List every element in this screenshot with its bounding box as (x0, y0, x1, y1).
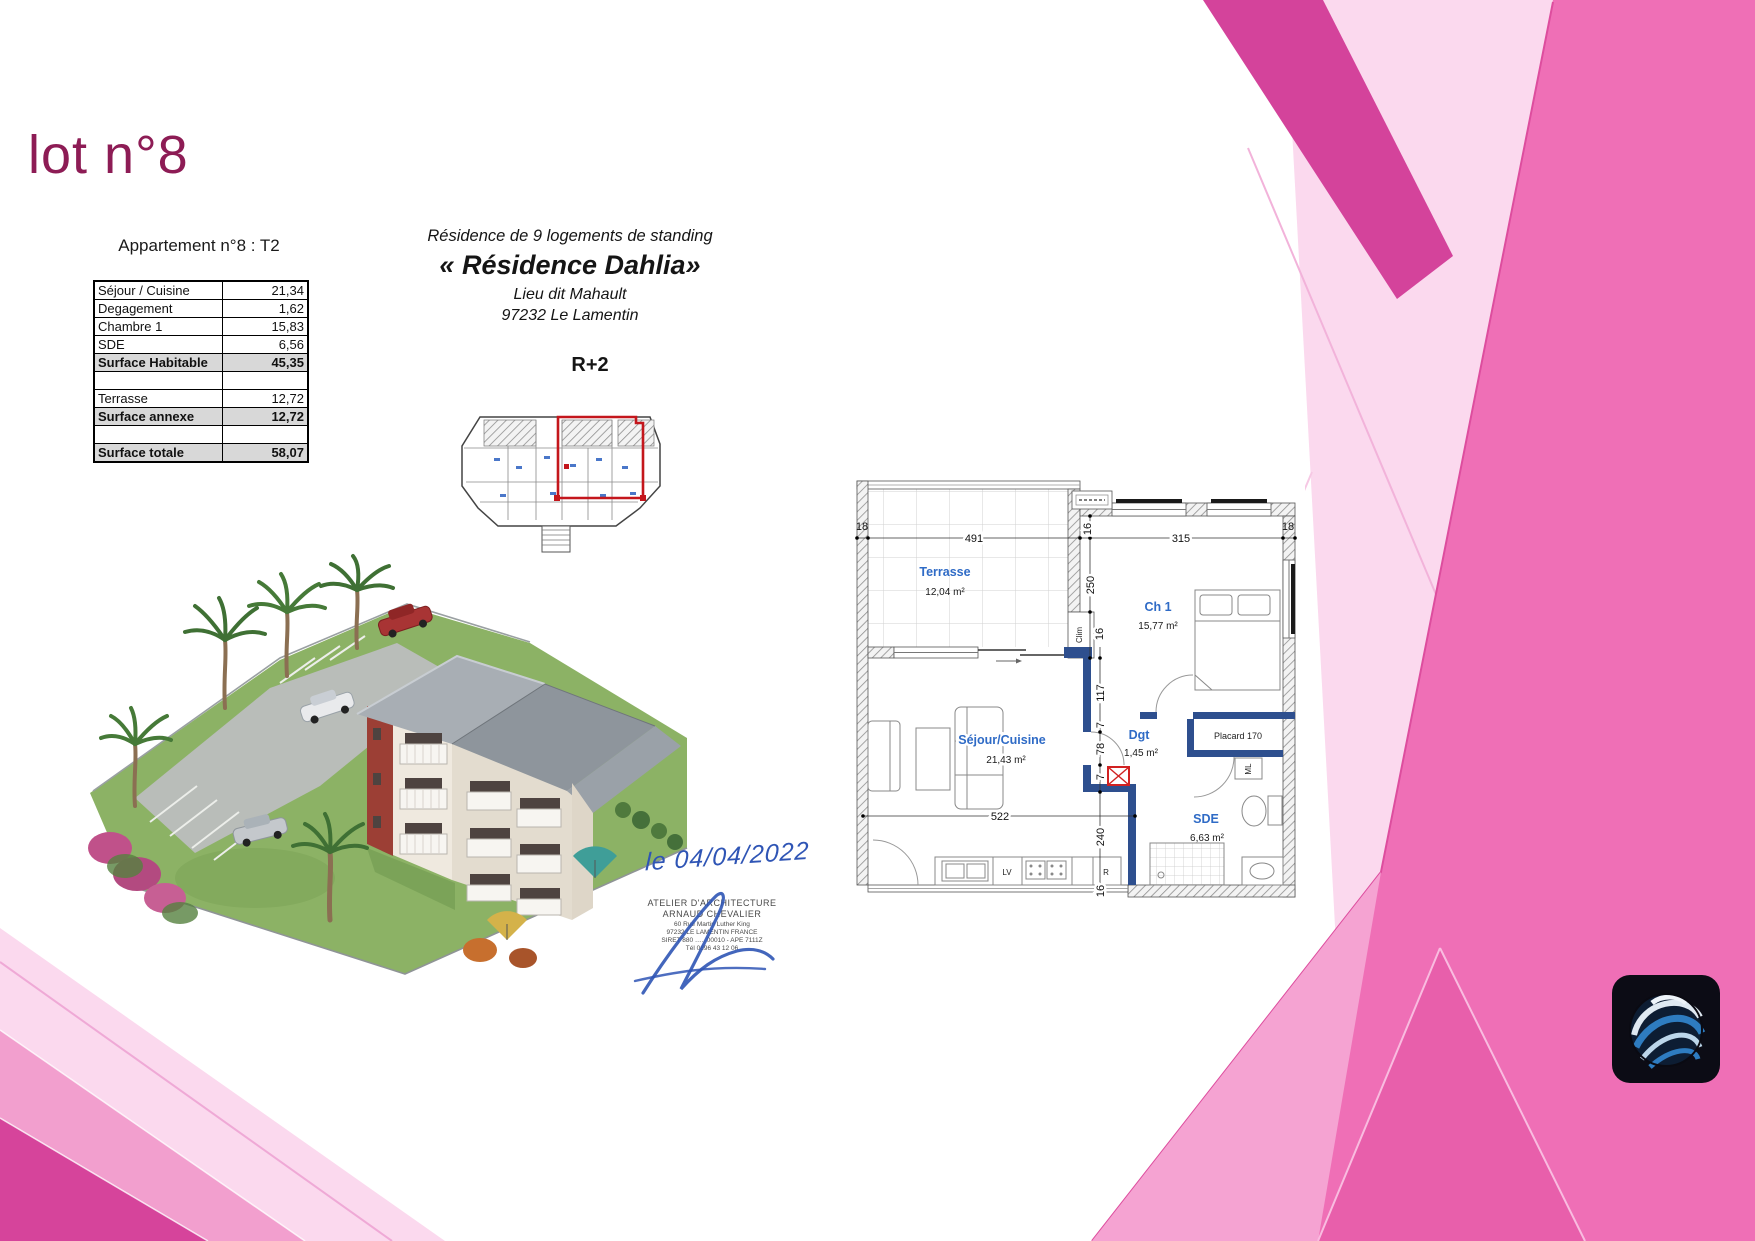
table-row-total: Surface totale58,07 (95, 443, 307, 461)
table-row: Chambre 115,83 (95, 317, 307, 335)
residence-city: 97232 Le Lamentin (420, 305, 720, 326)
dim-117: 117 (1095, 684, 1107, 702)
shower (1150, 843, 1224, 885)
red-crossed-box-icon (1108, 767, 1129, 785)
row-value: 6,56 (223, 336, 307, 353)
apartment-table-heading: Appartement n°8 : T2 (93, 236, 305, 256)
table-row: Séjour / Cuisine21,34 (95, 282, 307, 299)
table-row-total: Surface annexe12,72 (95, 407, 307, 425)
room-sde-label: SDE (1193, 812, 1219, 826)
residence-name: « Résidence Dahlia» (420, 249, 720, 282)
row-label: Séjour / Cuisine (95, 282, 223, 299)
table-row: Degagement1,62 (95, 299, 307, 317)
dim-240: 240 (1095, 828, 1107, 846)
room-dgt-label: Dgt (1129, 728, 1151, 742)
dim-7b: 7 (1095, 774, 1107, 780)
residence-heading-block: Résidence de 9 logements de standing « R… (420, 226, 720, 326)
placard-label: Placard 170 (1214, 731, 1262, 741)
table-row: SDE6,56 (95, 335, 307, 353)
brand-logo (1612, 975, 1720, 1083)
table-row: Terrasse12,72 (95, 389, 307, 407)
room-dgt-area: 1,45 m² (1124, 748, 1159, 759)
slide-canvas: lot n°8 Appartement n°8 : T2 Séjour / Cu… (0, 0, 1755, 1241)
dim-16-clim: 16 (1094, 628, 1106, 640)
clim-label: Clim (1075, 627, 1084, 643)
row-value: 58,07 (223, 444, 307, 461)
row-label: Terrasse (95, 390, 223, 407)
ml-label: ML (1244, 763, 1253, 775)
signature-scribble (615, 885, 805, 1000)
room-ch1-area: 15,77 m² (1138, 621, 1178, 632)
room-sde-area: 6,63 m² (1190, 833, 1225, 844)
kitchen-counter (935, 857, 1121, 885)
floor-level-label: R+2 (440, 354, 740, 377)
row-label: Surface totale (95, 444, 223, 461)
residence-subtitle: Résidence de 9 logements de standing (420, 226, 720, 246)
room-sejour-label: Séjour/Cuisine (958, 733, 1046, 747)
table-row-empty (95, 371, 307, 389)
row-label: SDE (95, 336, 223, 353)
row-value: 12,72 (223, 390, 307, 407)
room-terrasse-label: Terrasse (919, 565, 970, 579)
dim-7a: 7 (1095, 722, 1107, 728)
row-label: Chambre 1 (95, 318, 223, 335)
row-value: 15,83 (223, 318, 307, 335)
dim-78: 78 (1095, 743, 1107, 755)
room-ch1-label: Ch 1 (1144, 600, 1171, 614)
dim-18-left: 18 (856, 521, 868, 533)
table-row-total: Surface Habitable45,35 (95, 353, 307, 371)
dim-16-top: 16 (1082, 523, 1094, 535)
table-row-empty (95, 425, 307, 443)
dim-16-bottom: 16 (1095, 885, 1107, 897)
key-plan-r2 (450, 408, 665, 558)
dim-250: 250 (1085, 576, 1097, 594)
row-label: Surface annexe (95, 408, 223, 425)
row-value: 12,72 (223, 408, 307, 425)
apartment-floorplan: Clim (850, 425, 1305, 905)
row-value: 45,35 (223, 354, 307, 371)
room-sejour-area: 21,43 m² (986, 755, 1026, 766)
row-label: Degagement (95, 300, 223, 317)
residence-place: Lieu dit Mahault (420, 284, 720, 305)
meter-box (1072, 491, 1112, 509)
room-terrasse-area: 12,04 m² (925, 587, 965, 598)
dim-522: 522 (991, 811, 1009, 823)
row-label: Surface Habitable (95, 354, 223, 371)
dim-315: 315 (1172, 533, 1190, 545)
row-value: 1,62 (223, 300, 307, 317)
dim-491: 491 (965, 533, 983, 545)
building-render-illustration (75, 548, 705, 978)
lv-label: LV (1002, 868, 1012, 877)
dim-18-right: 18 (1282, 521, 1294, 533)
fridge-label: R (1103, 868, 1109, 877)
row-value: 21,34 (223, 282, 307, 299)
page-title: lot n°8 (28, 124, 189, 186)
surfaces-table: Séjour / Cuisine21,34 Degagement1,62 Cha… (93, 280, 309, 463)
